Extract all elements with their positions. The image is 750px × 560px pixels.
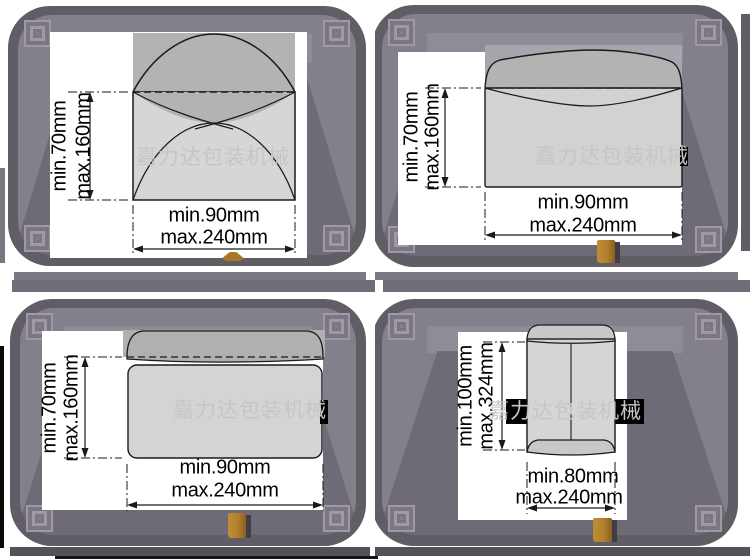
envelope-bottom-fold [527, 440, 615, 455]
height-min-label: min.70mm [39, 363, 62, 454]
height-min-label: min.100mm [455, 345, 478, 447]
envelope-body [485, 88, 682, 187]
edge-line-left-black [0, 346, 4, 548]
panel-top-left: min.70mm max.160mm min.90mm max.240mm 嘉力… [0, 0, 375, 280]
guide-peg [228, 513, 246, 538]
peg-shadow [612, 520, 617, 542]
edge-sliver-left [0, 168, 5, 263]
width-max-label: max.240mm [515, 487, 622, 510]
width-max-label: max.240mm [529, 215, 636, 238]
watermark: 嘉力达包装机械 [136, 141, 290, 171]
panel-bottom-left: min.70mm max.160mm min.90mm max.240mm 嘉力… [0, 280, 375, 560]
watermark: 嘉力达包装机械 [173, 394, 327, 424]
width-min-label: min.90mm [169, 205, 260, 228]
panel-top-right: min.70mm max.160mm min.90mm max.240mm 嘉力… [375, 0, 750, 280]
height-min-label: min.70mm [401, 92, 424, 183]
width-min-label: min.80mm [528, 466, 619, 489]
height-max-label: max.160mm [61, 354, 84, 461]
height-min-label: min.70mm [49, 101, 72, 192]
flap-backdrop [133, 33, 295, 92]
width-max-label: max.240mm [160, 227, 267, 250]
height-max-label: max.160mm [422, 83, 445, 190]
machine-spec-sheet: min.70mm max.160mm min.90mm max.240mm 嘉力… [0, 0, 750, 560]
guide-peg [593, 518, 612, 542]
panel-grid: min.70mm max.160mm min.90mm max.240mm 嘉力… [0, 0, 750, 560]
panel-bottom-right: min.100mm max.324mm min.80mm max.240mm 嘉… [375, 280, 750, 560]
width-max-label: max.240mm [171, 480, 278, 503]
watermark: 嘉力达包装机械 [488, 395, 642, 425]
watermark: 嘉力达包装机械 [535, 140, 689, 170]
width-min-label: min.90mm [180, 457, 271, 480]
guide-peg [597, 240, 615, 263]
height-max-label: max.160mm [73, 92, 96, 199]
width-min-label: min.90mm [538, 192, 629, 215]
edge-sliver-right [741, 14, 750, 251]
peg-shadow [615, 242, 620, 263]
edge-line-bottom-black [55, 556, 378, 559]
peg-shadow [246, 515, 251, 538]
